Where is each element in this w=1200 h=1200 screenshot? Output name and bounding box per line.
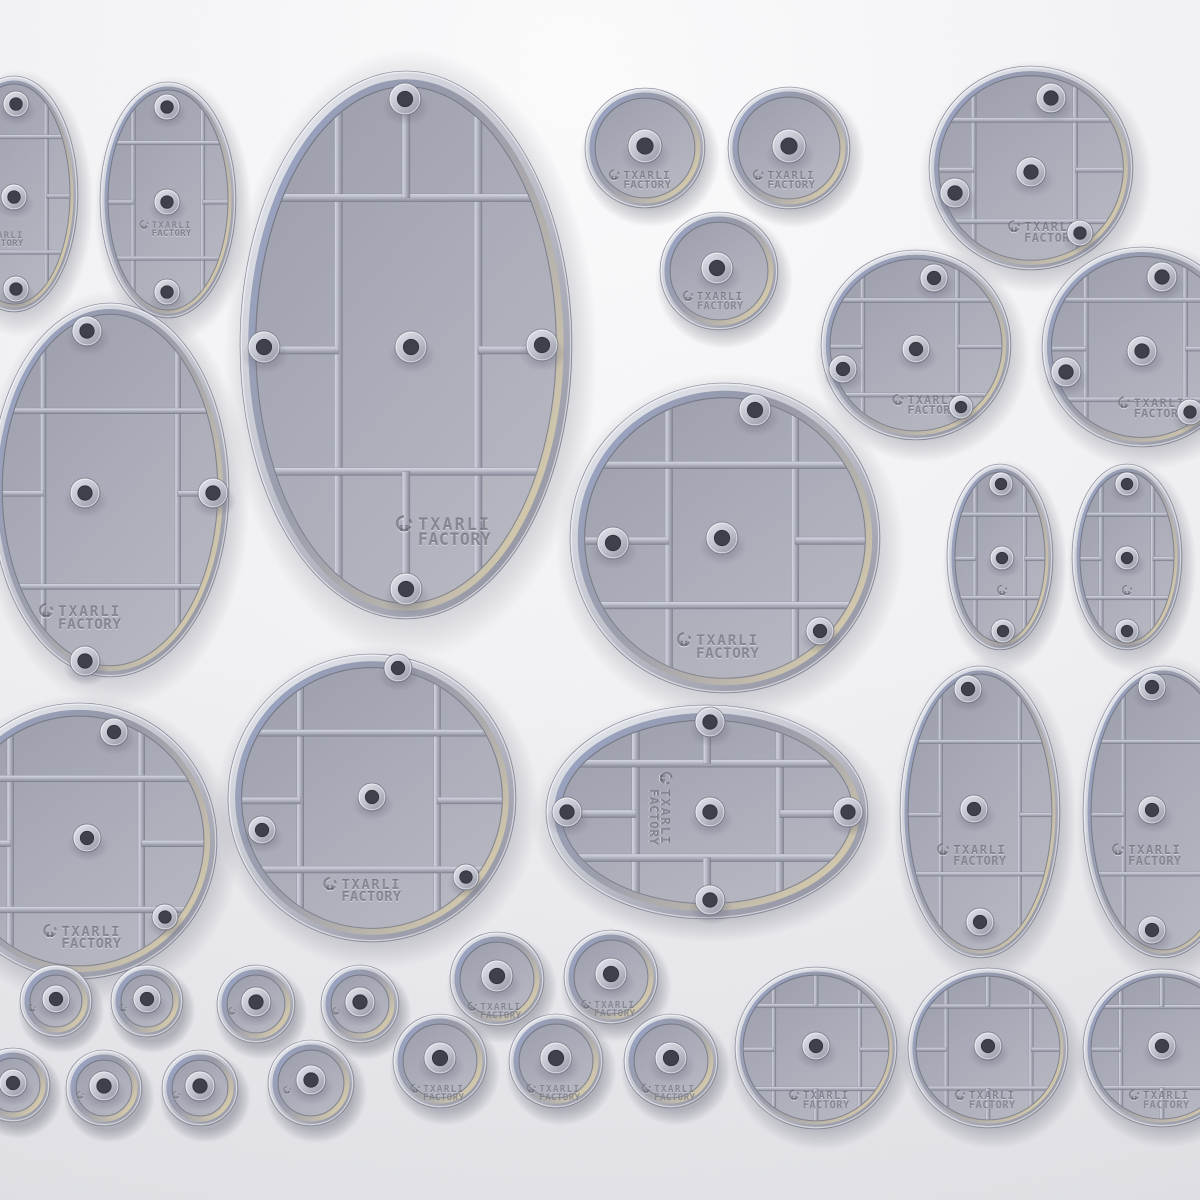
bases-render: TXARLIFACTORYTXARLIFACTORYTXARLIFACTORYT… xyxy=(0,0,1200,1200)
render-canvas: TXARLIFACTORYTXARLIFACTORYTXARLIFACTORYT… xyxy=(0,0,1200,1200)
grain-overlay xyxy=(0,0,1200,1200)
